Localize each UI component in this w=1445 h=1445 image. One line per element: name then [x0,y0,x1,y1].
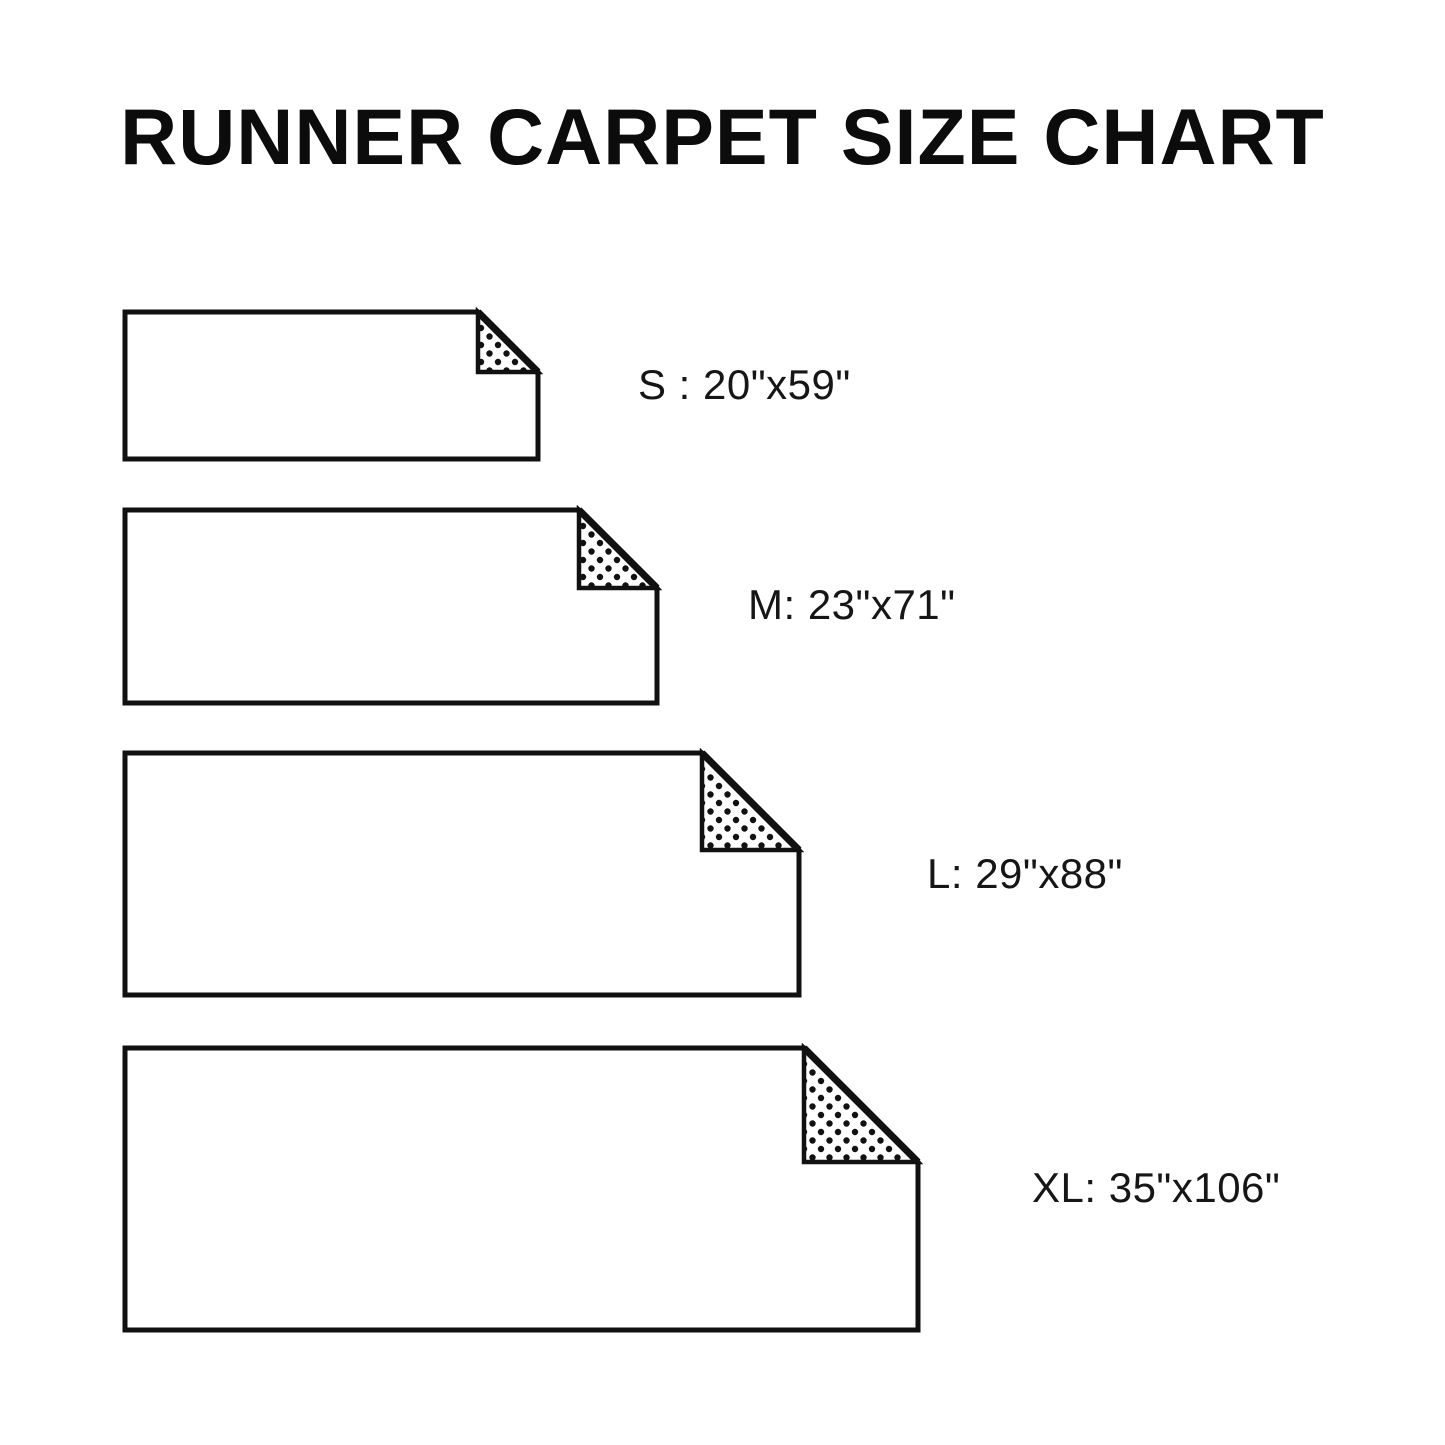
carpet-shape-s [120,307,543,464]
carpet-shape-l [120,748,804,1000]
carpet-outline-xl [125,1048,918,1330]
carpet-shape-m [120,505,662,708]
size-label-xl: XL: 35"x106" [1032,1164,1280,1212]
size-label-m: M: 23"x71" [748,581,956,629]
page-title: RUNNER CARPET SIZE CHART [0,97,1445,176]
size-label-l: L: 29"x88" [927,850,1123,898]
size-label-s: S : 20"x59" [638,361,851,409]
runner-carpet-size-chart: RUNNER CARPET SIZE CHART S : 20"x59"M: 2… [0,0,1445,1445]
carpet-outline-l [125,753,799,995]
carpet-shape-xl [120,1043,923,1335]
